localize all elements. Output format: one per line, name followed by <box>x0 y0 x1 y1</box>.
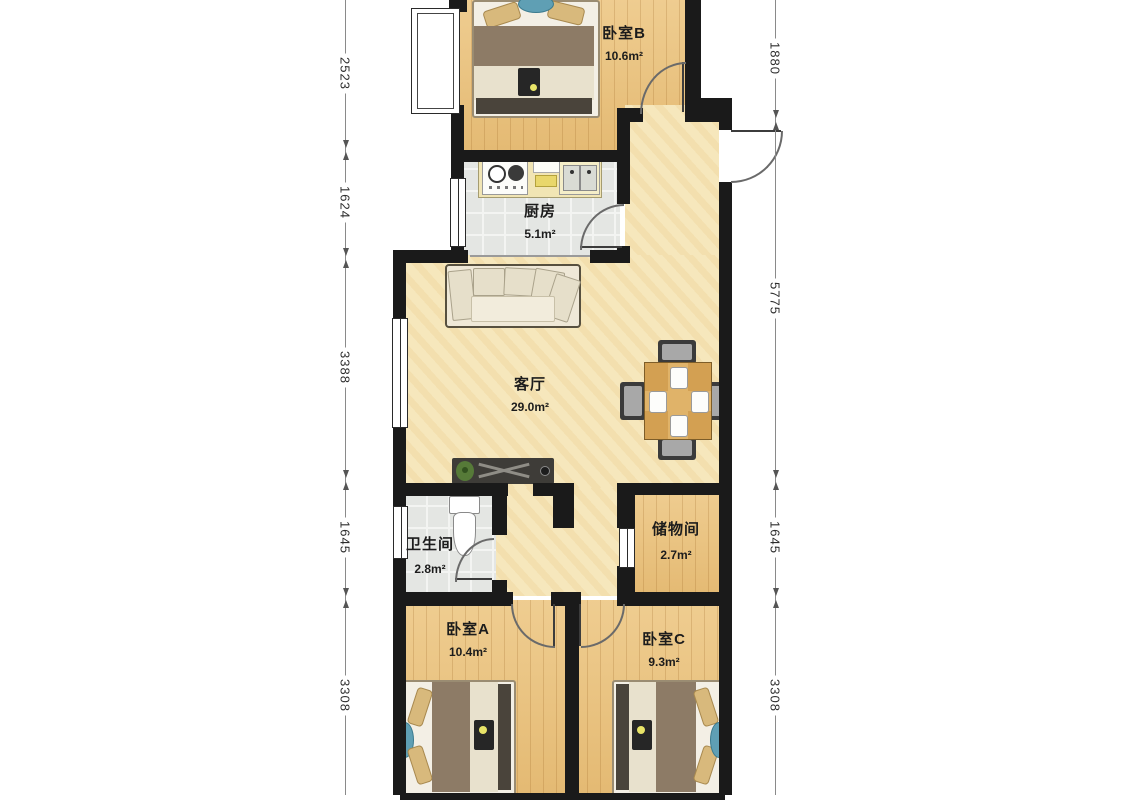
dim-arrow-down <box>773 588 779 596</box>
dim-arrow-down <box>343 248 349 256</box>
floor-plan: LIANJIA com <box>0 0 1125 800</box>
dim-value-right-1880: 1880 <box>768 17 783 101</box>
dim-arrow-up <box>343 152 349 160</box>
dim-value-left-3388: 3388 <box>338 326 353 410</box>
room-name: 卧室C <box>642 628 686 649</box>
room-area: 10.6m² <box>602 49 646 63</box>
room-name: 客厅 <box>511 373 549 394</box>
labels-layer: 卧室B 10.6m² 厨房 5.1m² 客厅 29.0m² 卫生间 2.8m² … <box>0 0 1125 800</box>
dim-arrow-up <box>773 482 779 490</box>
dim-value-right-5775: 5775 <box>768 257 783 341</box>
room-area: 29.0m² <box>511 400 549 414</box>
dim-value-left-3308: 3308 <box>338 654 353 738</box>
room-label-bedroom-a: 卧室A 10.4m² <box>446 618 490 659</box>
room-name: 卫生间 <box>406 533 454 554</box>
dim-arrow-down <box>773 470 779 478</box>
dim-arrow-down <box>343 588 349 596</box>
room-name: 卧室B <box>602 22 646 43</box>
room-label-kitchen: 厨房 5.1m² <box>524 200 556 241</box>
dim-value-left-1645: 1645 <box>338 496 353 580</box>
dim-arrow-up <box>773 600 779 608</box>
room-name: 储物间 <box>652 518 700 539</box>
dim-arrow-down <box>773 110 779 118</box>
room-area: 5.1m² <box>524 227 556 241</box>
dim-arrow-up <box>773 122 779 130</box>
room-area: 2.7m² <box>652 548 700 562</box>
room-name: 厨房 <box>524 200 556 221</box>
dim-arrow-down <box>343 470 349 478</box>
dim-arrow-down <box>343 140 349 148</box>
dim-arrow-up <box>343 260 349 268</box>
dim-arrow-up <box>343 600 349 608</box>
dim-value-right-1645: 1645 <box>768 496 783 580</box>
room-area: 9.3m² <box>642 655 686 669</box>
room-label-living-room: 客厅 29.0m² <box>511 373 549 414</box>
room-label-storage: 储物间 2.7m² <box>652 518 700 562</box>
room-area: 10.4m² <box>446 645 490 659</box>
room-label-bedroom-b: 卧室B 10.6m² <box>602 22 646 63</box>
room-name: 卧室A <box>446 618 490 639</box>
room-label-bedroom-c: 卧室C 9.3m² <box>642 628 686 669</box>
dim-value-left-1624: 1624 <box>338 161 353 245</box>
dim-value-right-3308: 3308 <box>768 654 783 738</box>
dim-value-left-2523: 2523 <box>338 32 353 116</box>
room-label-bathroom: 卫生间 2.8m² <box>406 533 454 576</box>
room-area: 2.8m² <box>406 562 454 576</box>
dim-arrow-up <box>343 482 349 490</box>
